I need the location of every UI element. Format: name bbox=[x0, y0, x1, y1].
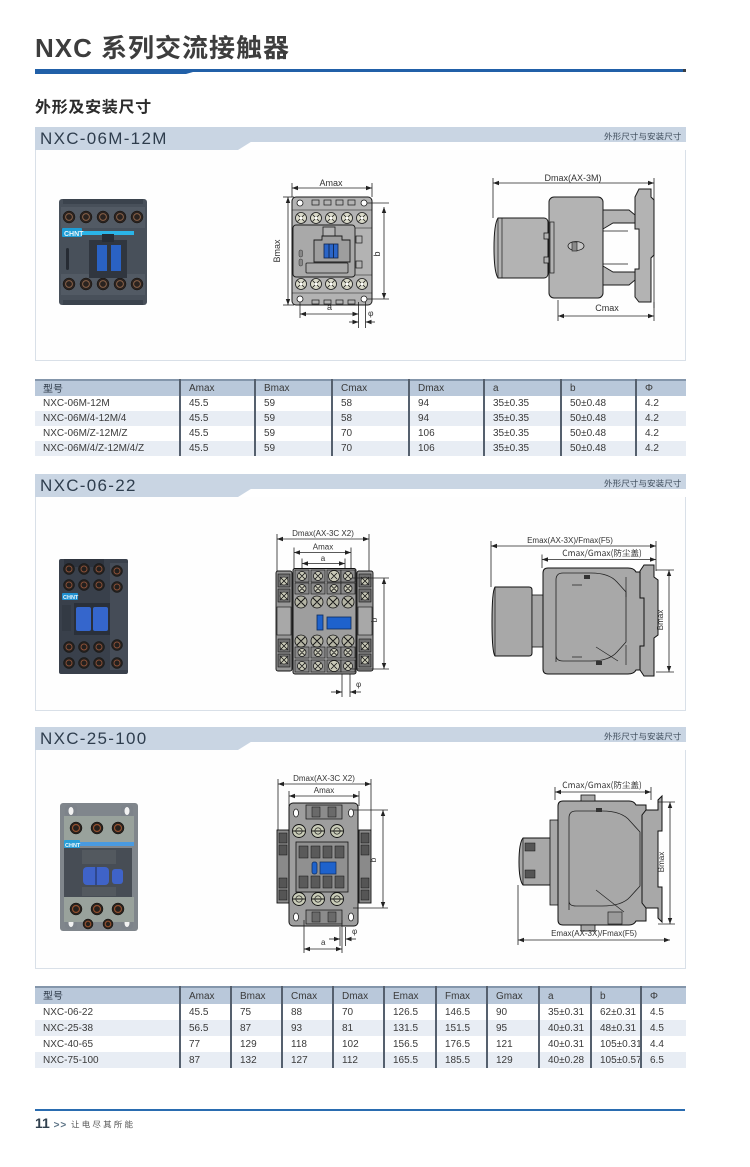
svg-text:φ: φ bbox=[368, 308, 374, 318]
svg-text:Dmax(AX-3M): Dmax(AX-3M) bbox=[544, 173, 601, 183]
svg-text:b: b bbox=[372, 251, 382, 256]
svg-text:Emax(AX-3X)/Fmax(F5): Emax(AX-3X)/Fmax(F5) bbox=[551, 929, 637, 938]
svg-text:Amax: Amax bbox=[319, 178, 343, 188]
svg-text:φ: φ bbox=[356, 680, 361, 689]
svg-text:Cmax: Cmax bbox=[595, 303, 619, 313]
svg-text:Amax: Amax bbox=[313, 543, 333, 552]
svg-text:φ: φ bbox=[352, 927, 357, 936]
svg-text:CHNT: CHNT bbox=[64, 231, 84, 238]
svg-text:Bmax: Bmax bbox=[656, 610, 665, 630]
svg-text:CHNT: CHNT bbox=[63, 595, 79, 601]
svg-text:Dmax(AX-3C X2): Dmax(AX-3C X2) bbox=[292, 529, 354, 538]
svg-text:Bmax: Bmax bbox=[272, 239, 282, 263]
svg-text:Dmax(AX-3C X2): Dmax(AX-3C X2) bbox=[293, 774, 355, 783]
svg-text:Bmax: Bmax bbox=[657, 852, 666, 872]
svg-text:a: a bbox=[327, 302, 332, 312]
svg-text:a: a bbox=[321, 938, 326, 947]
svg-text:b: b bbox=[370, 617, 379, 622]
svg-text:a: a bbox=[321, 554, 326, 563]
svg-text:b: b bbox=[369, 857, 378, 862]
svg-text:Emax(AX-3X)/Fmax(F5): Emax(AX-3X)/Fmax(F5) bbox=[527, 536, 613, 545]
svg-text:Amax: Amax bbox=[314, 786, 334, 795]
